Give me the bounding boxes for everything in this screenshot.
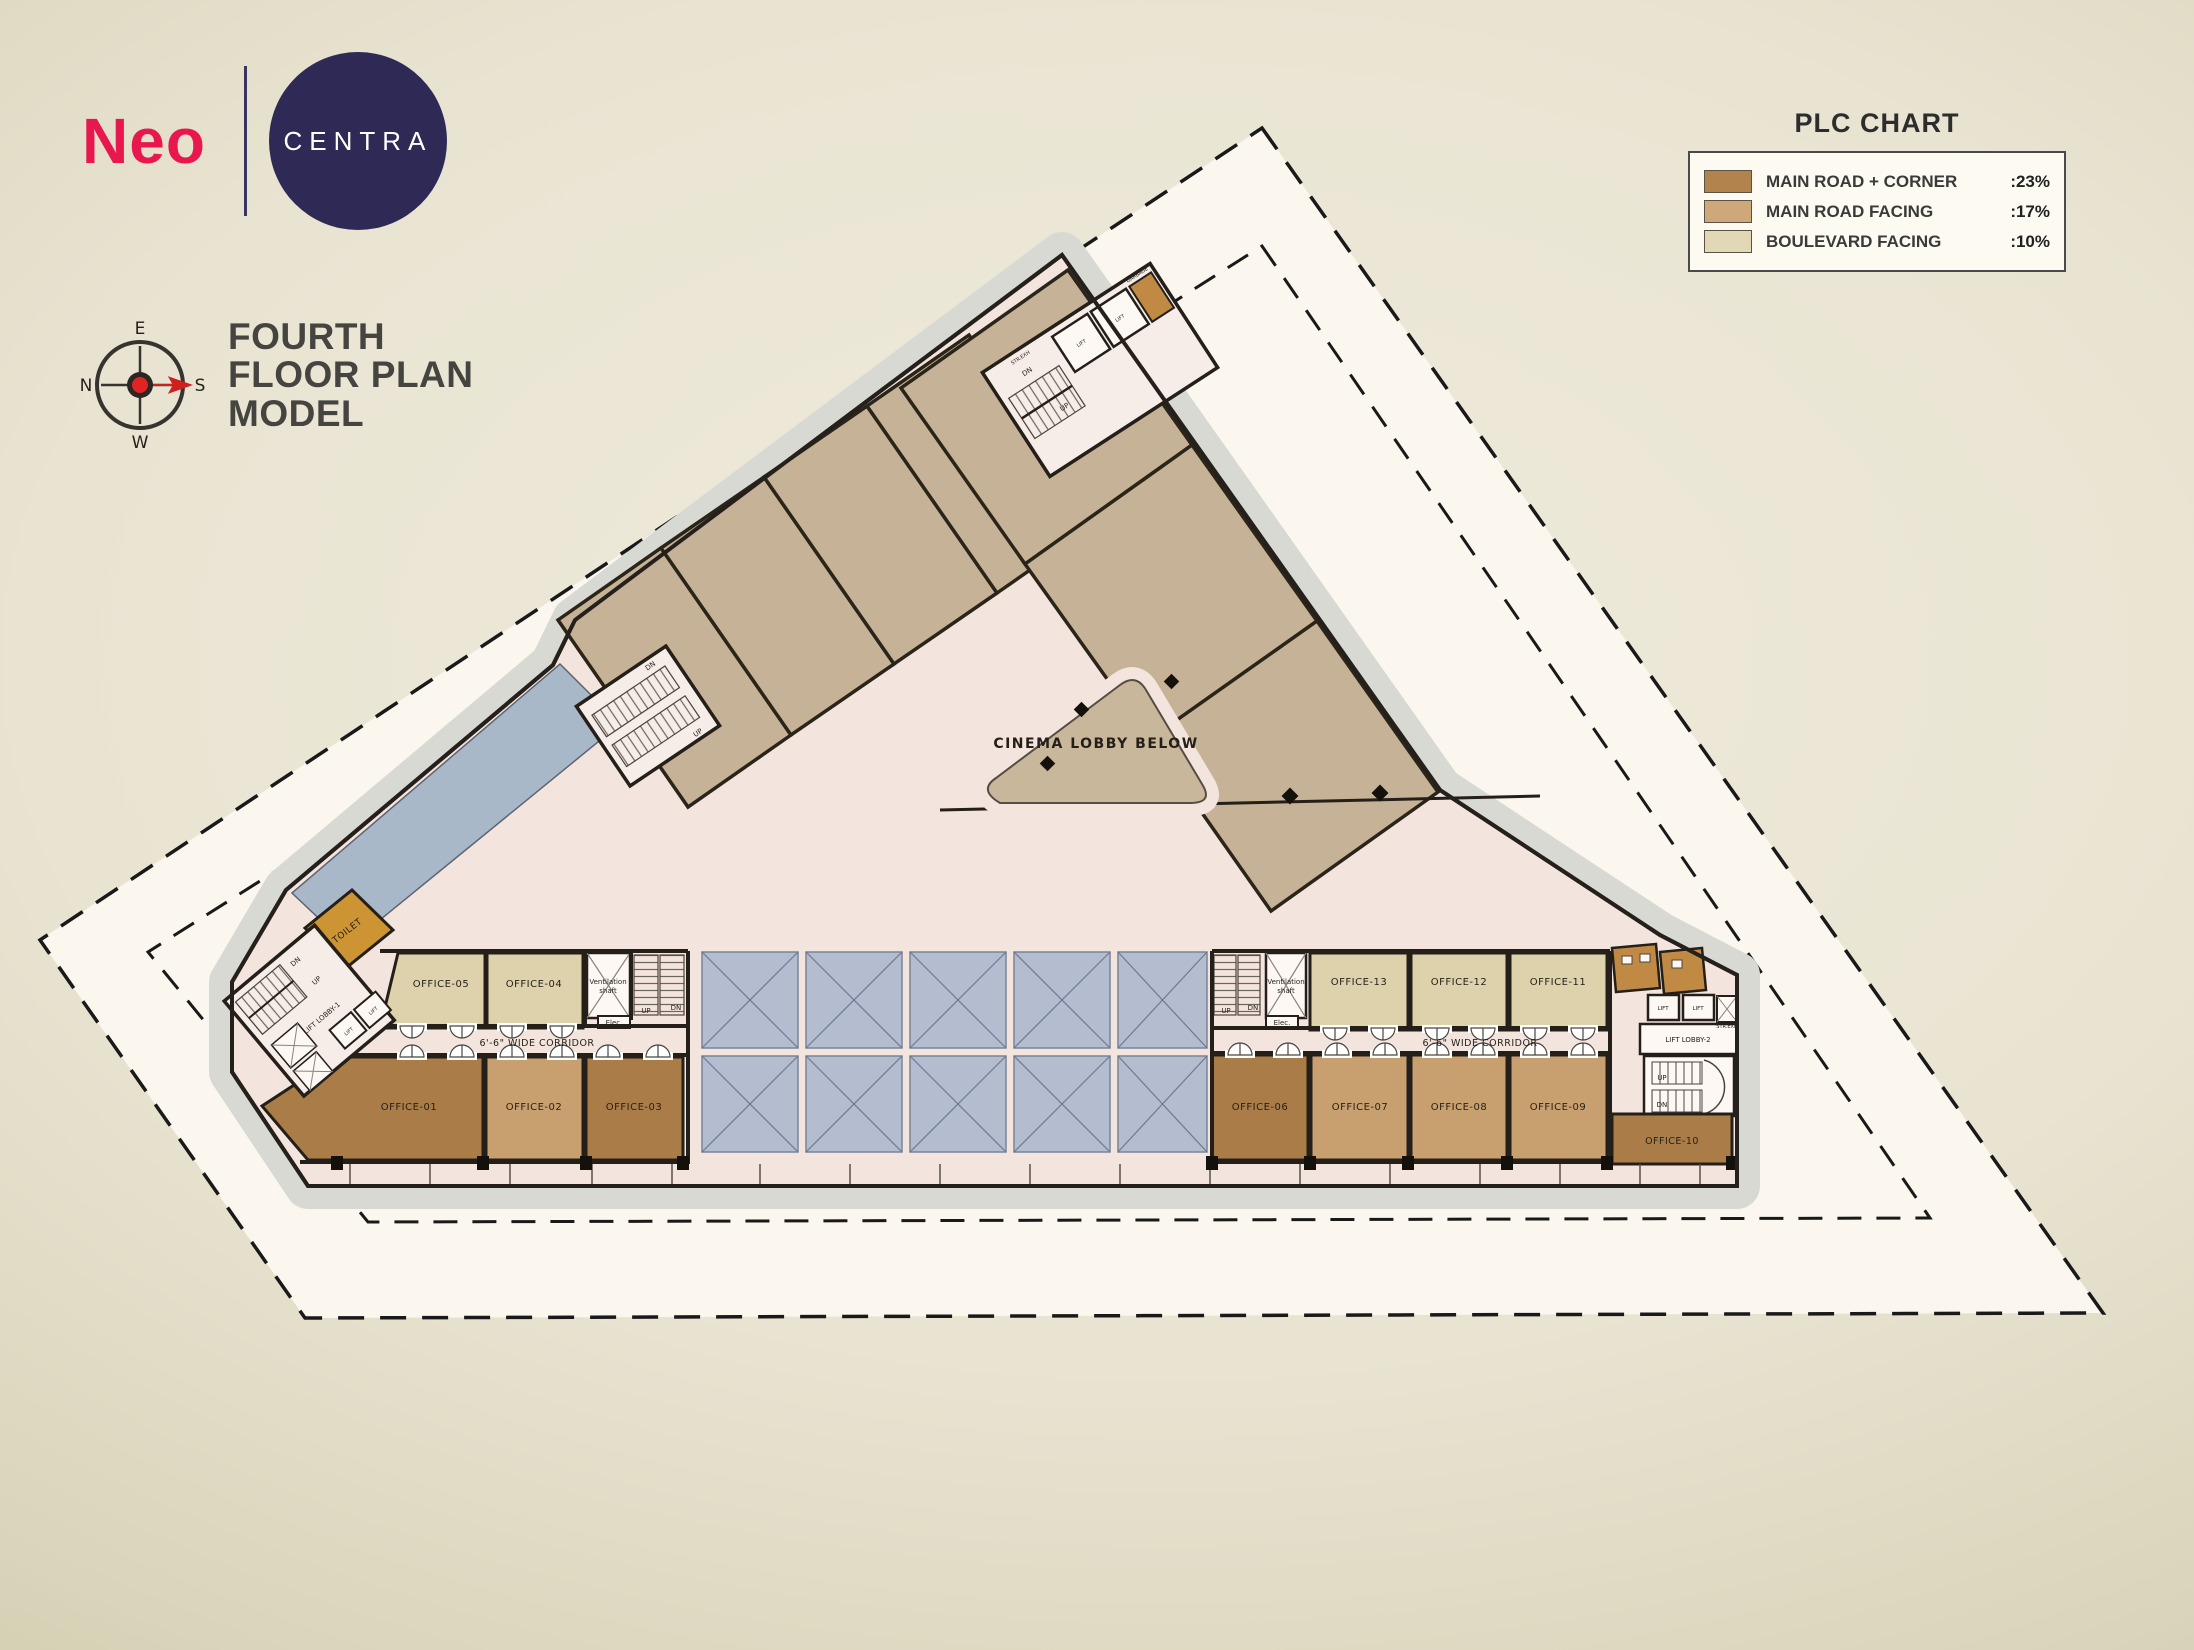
logo-neo-text: Neo xyxy=(82,109,206,173)
office-05-label: OFFICE-05 xyxy=(413,979,469,990)
lift-label: LIFT xyxy=(1692,1006,1704,1012)
stairs-dn-label: DN xyxy=(1248,1004,1259,1012)
cinema-lobby-label: CINEMA LOBBY BELOW xyxy=(993,736,1198,752)
office-13-label: OFFICE-13 xyxy=(1331,977,1387,988)
lift-label: LIFT xyxy=(1657,1006,1669,1012)
office-11-room xyxy=(1510,953,1607,1030)
plc-row-main-road-facing: MAIN ROAD FACING :17% xyxy=(1704,200,2050,223)
brand-logo: Neo CENTRA xyxy=(82,52,447,230)
logo-centra-disc: CENTRA xyxy=(269,52,447,230)
legend-value: :17% xyxy=(2010,202,2050,222)
stairs-dn-label: DN xyxy=(671,1004,682,1012)
title-line-3: MODEL xyxy=(228,395,473,433)
compass-s: S xyxy=(195,376,206,396)
office-12-label: OFFICE-12 xyxy=(1431,977,1487,988)
elec-label: Elec. xyxy=(1274,1019,1291,1027)
legend-swatch-main-road-facing xyxy=(1704,200,1752,223)
corridor-left-label: 6'-6" WIDE CORRIDOR xyxy=(479,1038,594,1049)
stairs-up-label: UP xyxy=(1657,1074,1666,1082)
legend-swatch-boulevard-facing xyxy=(1704,230,1752,253)
toilet-block-right xyxy=(1612,944,1660,992)
office-01-label: OFFICE-01 xyxy=(381,1102,437,1113)
vent-shaft-label2: shaft xyxy=(1277,987,1295,995)
office-13-room xyxy=(1310,953,1408,1030)
vent-shaft-label2: shaft xyxy=(599,987,617,995)
logo-centra-text: CENTRA xyxy=(283,126,432,157)
vent-shaft-label: Ventilation xyxy=(1267,978,1304,986)
stairs-left-flight xyxy=(634,955,658,1015)
lift-lobby-2-label: LIFT LOBBY-2 xyxy=(1665,1036,1710,1044)
office-02-label: OFFICE-02 xyxy=(506,1102,562,1113)
compass-rose: E S W N xyxy=(78,312,218,462)
office-10-label: OFFICE-10 xyxy=(1645,1136,1699,1147)
office-05-room xyxy=(380,953,485,1028)
legend-label: BOULEVARD FACING xyxy=(1766,232,2010,252)
legend-label: MAIN ROAD FACING xyxy=(1766,202,2010,222)
office-08-label: OFFICE-08 xyxy=(1431,1102,1487,1113)
office-09-label: OFFICE-09 xyxy=(1530,1102,1586,1113)
title-line-2: FLOOR PLAN xyxy=(228,356,473,394)
corridor-right-label: 6'-6" WIDE CORRIDOR xyxy=(1422,1038,1537,1049)
compass-n: N xyxy=(80,376,93,396)
plc-row-boulevard-facing: BOULEVARD FACING :10% xyxy=(1704,230,2050,253)
plc-row-main-road-corner: MAIN ROAD + CORNER :23% xyxy=(1704,170,2050,193)
title-line-1: FOURTH xyxy=(228,318,473,356)
compass-e: E xyxy=(135,319,146,339)
plc-chart-box: MAIN ROAD + CORNER :23% MAIN ROAD FACING… xyxy=(1688,151,2066,272)
compass-w: W xyxy=(132,433,149,453)
stairs-dn-label: DN xyxy=(1657,1101,1668,1109)
stairs-up-label: UP xyxy=(641,1007,650,1015)
vent-shaft-label: Ventilation xyxy=(589,978,626,986)
page-title: FOURTH FLOOR PLAN MODEL xyxy=(228,318,473,433)
logo-divider xyxy=(244,66,247,216)
stairs-up-label: UP xyxy=(1221,1007,1230,1015)
legend-swatch-main-road-corner xyxy=(1704,170,1752,193)
str-exh-label: STR.EXH xyxy=(1716,1024,1738,1030)
office-07-label: OFFICE-07 xyxy=(1332,1102,1388,1113)
office-04-label: OFFICE-04 xyxy=(506,979,562,990)
legend-label: MAIN ROAD + CORNER xyxy=(1766,172,2010,192)
page: CINEMA LOBBY BELOW DN UP LIFT LIFT GARBA… xyxy=(0,0,2194,1650)
plc-chart: PLC CHART MAIN ROAD + CORNER :23% MAIN R… xyxy=(1688,108,2066,272)
plc-chart-title: PLC CHART xyxy=(1688,108,2066,139)
office-block-right: UP DN Ventilation shaft Elec. OFFICE-13 … xyxy=(1212,944,1738,1164)
legend-value: :23% xyxy=(2010,172,2050,192)
office-03-label: OFFICE-03 xyxy=(606,1102,662,1113)
elec-label: Elec. xyxy=(606,1019,623,1027)
office-12-room xyxy=(1411,953,1507,1030)
office-11-label: OFFICE-11 xyxy=(1530,977,1586,988)
stairs-right-flight xyxy=(1214,955,1236,1015)
legend-value: :10% xyxy=(2010,232,2050,252)
office-04-room xyxy=(487,953,583,1028)
compass-center-dot xyxy=(132,377,148,393)
office-06-label: OFFICE-06 xyxy=(1232,1102,1288,1113)
